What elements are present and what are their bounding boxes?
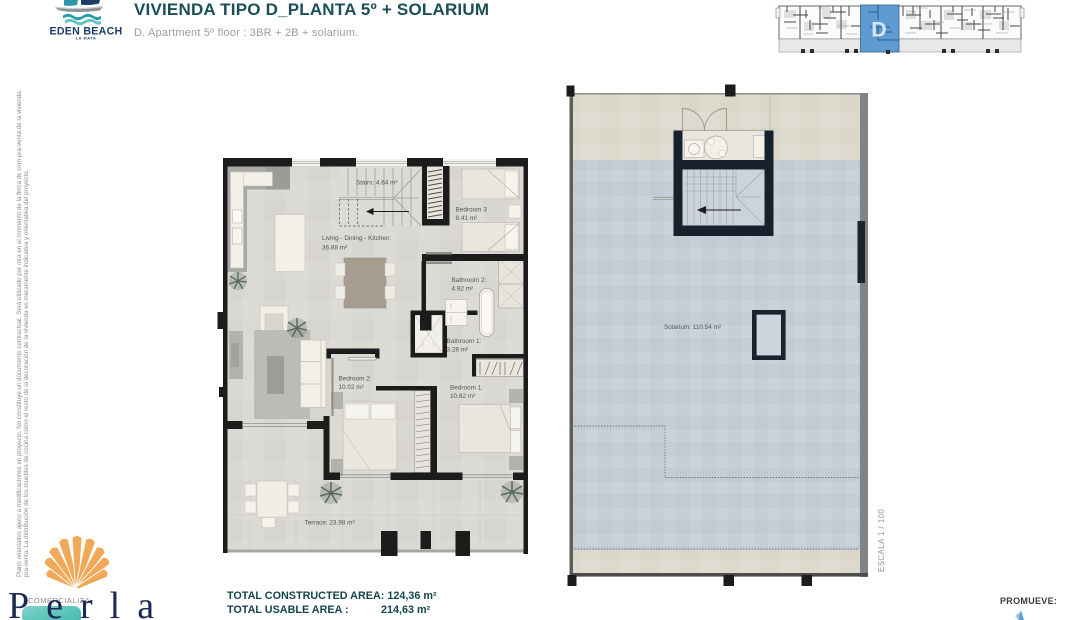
svg-text:4.92 m²: 4.92 m² [452,286,474,293]
svg-text:D. Apartment 5º floor : 3BR +: D. Apartment 5º floor : 3BR + 2B + solar… [134,27,358,39]
svg-text:ESCALA 1 / 100: ESCALA 1 / 100 [877,508,886,572]
svg-text:LA MATA: LA MATA [76,37,97,41]
svg-text:Perla: Perla [8,585,171,620]
svg-text:Bedroom 2:: Bedroom 2: [339,376,372,383]
svg-text:Stairs: 4.64 m²: Stairs: 4.64 m² [356,180,398,187]
svg-text:Plano orientativo ajeno a modi: Plano orientativo ajeno a modificaciones… [16,89,23,577]
svg-text:Bathroom 1:: Bathroom 1: [447,338,482,345]
svg-text:Bathroom 2:: Bathroom 2: [452,277,487,284]
svg-text:36.88 m²: 36.88 m² [322,245,347,252]
svg-text:10.02 m²: 10.02 m² [339,384,364,391]
svg-text:Bedroom 1:: Bedroom 1: [450,385,483,392]
svg-text:VIVIENDA TIPO D_PLANTA 5º + SO: VIVIENDA TIPO D_PLANTA 5º + SOLARIUM [134,0,489,19]
svg-text:TOTAL USABLE AREA :: TOTAL USABLE AREA : [227,604,349,616]
svg-text:Living - Dining - Kitchen:: Living - Dining - Kitchen: [322,235,391,242]
svg-text:Solarium: 110.54 m²: Solarium: 110.54 m² [664,324,721,331]
svg-text:PROMUEVE:: PROMUEVE: [1000,596,1057,606]
svg-text:8.41 m²: 8.41 m² [456,215,478,222]
svg-text:D: D [871,18,887,42]
svg-text:Bedroom 3: Bedroom 3 [456,207,488,214]
svg-text:10.62 m²: 10.62 m² [450,393,475,400]
svg-text:pra-venta. La distribución de: pra-venta. La distribución de los mueble… [23,169,30,577]
svg-text:3.28 m²: 3.28 m² [447,347,469,354]
svg-text:214,63 m²: 214,63 m² [381,604,431,616]
svg-text:TOTAL CONSTRUCTED AREA: 124,36: TOTAL CONSTRUCTED AREA: 124,36 m² [227,590,437,602]
svg-text:Terrace: 23.98 m²: Terrace: 23.98 m² [305,520,355,527]
